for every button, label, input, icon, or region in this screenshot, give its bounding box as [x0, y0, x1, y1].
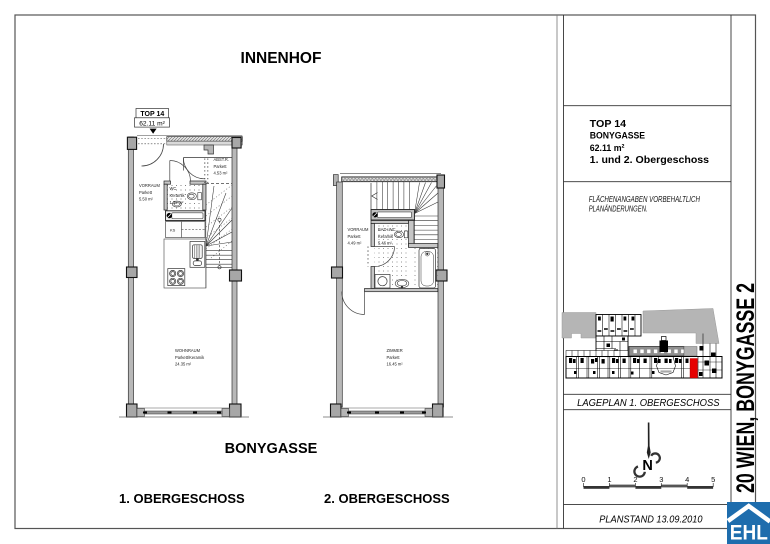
svg-text:KS: KS: [170, 227, 176, 232]
svg-text:5.46 m²: 5.46 m²: [378, 240, 393, 245]
svg-text:16.45 m²: 16.45 m²: [387, 361, 404, 366]
svg-text:FLÄCHENANGABEN VORBEHALTLICH: FLÄCHENANGABEN VORBEHALTLICH: [589, 194, 700, 204]
svg-text:TOP 14: TOP 14: [140, 111, 164, 118]
svg-text:Parkett/Keramik: Parkett/Keramik: [175, 355, 205, 360]
svg-text:20 WIEN, BONYGASSE 2: 20 WIEN, BONYGASSE 2: [732, 283, 760, 493]
svg-text:5: 5: [711, 475, 715, 484]
svg-text:Keramik: Keramik: [170, 193, 186, 198]
svg-text:0: 0: [581, 475, 585, 484]
svg-text:1. und 2. Obergeschoss: 1. und 2. Obergeschoss: [590, 155, 710, 166]
svg-text:Parkett: Parkett: [214, 164, 228, 169]
svg-text:WC: WC: [170, 186, 177, 191]
svg-text:2. OBERGESCHOSS: 2. OBERGESCHOSS: [324, 491, 450, 506]
svg-text:BONYGASSE: BONYGASSE: [225, 441, 318, 457]
svg-text:EHL: EHL: [730, 522, 768, 544]
svg-text:PLANÄNDERUNGEN.: PLANÄNDERUNGEN.: [589, 203, 648, 213]
svg-text:1: 1: [607, 475, 611, 484]
svg-text:4.49 m²: 4.49 m²: [348, 240, 363, 245]
svg-text:4.53 m²: 4.53 m²: [214, 170, 229, 175]
svg-text:4: 4: [685, 475, 689, 484]
svg-text:5.50 m²: 5.50 m²: [139, 196, 154, 201]
svg-text:N: N: [642, 458, 652, 474]
svg-text:TOP 14: TOP 14: [590, 119, 627, 130]
svg-text:62.11 m²: 62.11 m²: [139, 120, 165, 127]
svg-text:BONYGASSE: BONYGASSE: [590, 131, 645, 141]
svg-text:62.11 m²: 62.11 m²: [590, 143, 625, 154]
svg-text:2: 2: [633, 475, 637, 484]
svg-text:Keramik: Keramik: [378, 234, 394, 239]
svg-text:PLANSTAND 13.09.2010: PLANSTAND 13.09.2010: [599, 514, 703, 525]
svg-text:VORRAUM: VORRAUM: [139, 183, 161, 188]
svg-text:1. OBERGESCHOSS: 1. OBERGESCHOSS: [119, 491, 245, 506]
svg-text:Parkett: Parkett: [387, 355, 401, 360]
svg-text:VORRAUM: VORRAUM: [348, 227, 370, 232]
svg-text:24.35 m²: 24.35 m²: [175, 361, 192, 366]
svg-text:LAGEPLAN 1. OBERGESCHOSS: LAGEPLAN 1. OBERGESCHOSS: [577, 398, 719, 409]
svg-text:ABST.R.: ABST.R.: [214, 157, 229, 162]
svg-text:Parkett: Parkett: [139, 190, 153, 195]
svg-text:INNENHOF: INNENHOF: [241, 50, 322, 67]
svg-text:ZIMMER: ZIMMER: [387, 348, 403, 353]
svg-text:BAD+WC: BAD+WC: [378, 227, 396, 232]
svg-text:3: 3: [659, 475, 663, 484]
svg-text:Parkett: Parkett: [348, 234, 362, 239]
svg-text:WOHNRAUM: WOHNRAUM: [175, 348, 201, 353]
svg-text:1.32 m²: 1.32 m²: [170, 200, 185, 205]
